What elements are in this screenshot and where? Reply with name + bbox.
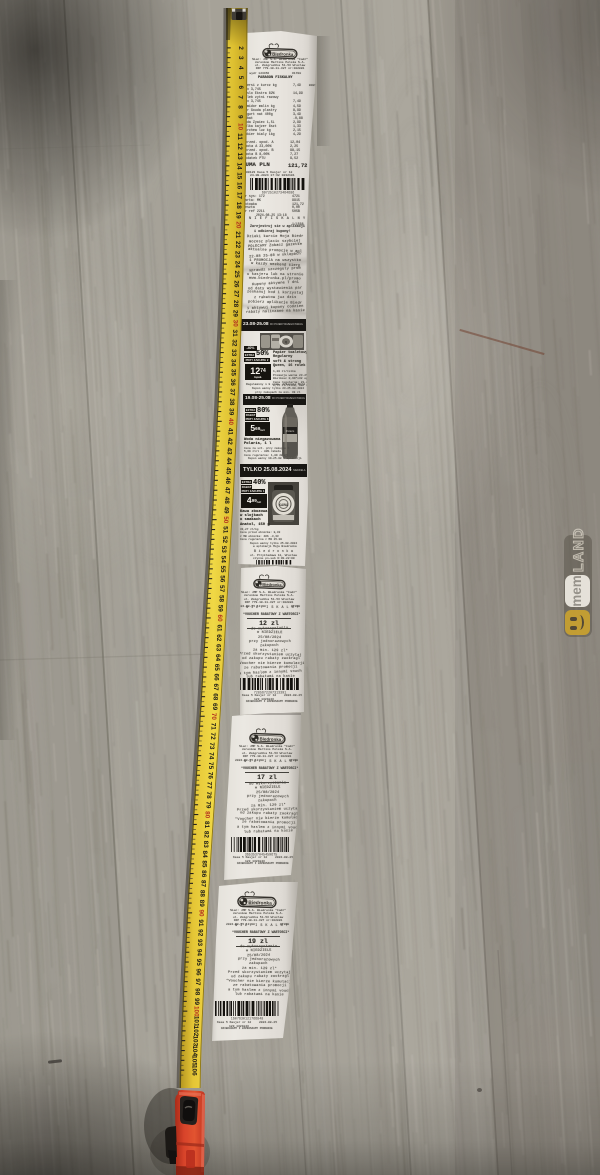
svg-text:63: 63 — [214, 644, 221, 652]
svg-text:12: 12 — [236, 143, 243, 151]
svg-text:71: 71 — [210, 723, 217, 731]
svg-text:75: 75 — [207, 762, 214, 770]
svg-text:48: 48 — [223, 497, 230, 505]
svg-text:94: 94 — [196, 949, 203, 957]
svg-text:19: 19 — [235, 212, 242, 220]
svg-text:64: 64 — [214, 654, 221, 662]
svg-text:50: 50 — [222, 516, 229, 524]
svg-text:47: 47 — [224, 487, 231, 495]
svg-text:67: 67 — [212, 683, 219, 691]
svg-text:43: 43 — [226, 447, 233, 455]
svg-text:11: 11 — [236, 133, 243, 140]
svg-text:26: 26 — [233, 280, 240, 288]
svg-text:62: 62 — [215, 634, 222, 642]
svg-text:61: 61 — [216, 624, 223, 632]
svg-text:57: 57 — [218, 585, 225, 593]
svg-text:13: 13 — [236, 153, 243, 161]
svg-text:53: 53 — [220, 546, 227, 554]
svg-text:83: 83 — [202, 841, 209, 849]
svg-text:51: 51 — [221, 526, 228, 534]
svg-text:79: 79 — [204, 801, 211, 809]
svg-text:39: 39 — [228, 408, 235, 416]
svg-text:73: 73 — [208, 742, 215, 750]
svg-text:22: 22 — [234, 241, 241, 249]
svg-text:28: 28 — [232, 300, 239, 308]
svg-text:55: 55 — [219, 565, 226, 573]
svg-text:40: 40 — [227, 418, 234, 426]
svg-text:98: 98 — [194, 988, 201, 996]
svg-text:37: 37 — [229, 389, 236, 397]
svg-text:84: 84 — [201, 851, 208, 859]
svg-text:30: 30 — [231, 320, 238, 328]
svg-text:23: 23 — [234, 251, 241, 259]
svg-text:54: 54 — [220, 556, 227, 564]
svg-text:82: 82 — [203, 831, 210, 839]
svg-text:80: 80 — [204, 811, 211, 819]
svg-text:69: 69 — [211, 703, 218, 711]
svg-text:27: 27 — [232, 290, 239, 298]
svg-text:17: 17 — [235, 192, 242, 200]
svg-text:10: 10 — [236, 123, 243, 131]
svg-text:32: 32 — [231, 339, 238, 347]
svg-text:70: 70 — [210, 713, 217, 721]
svg-text:97: 97 — [194, 978, 201, 986]
svg-text:68: 68 — [211, 693, 218, 701]
svg-text:65: 65 — [213, 664, 220, 672]
svg-text:14: 14 — [236, 162, 243, 170]
svg-text:46: 46 — [224, 477, 231, 485]
svg-text:34: 34 — [230, 359, 237, 367]
svg-text:74: 74 — [208, 752, 215, 760]
svg-text:66: 66 — [213, 674, 220, 682]
svg-text:6: 6 — [237, 86, 244, 90]
svg-text:81: 81 — [203, 821, 210, 829]
svg-text:77: 77 — [206, 782, 213, 790]
svg-text:45: 45 — [225, 467, 232, 475]
svg-text:4: 4 — [237, 66, 244, 70]
svg-text:58: 58 — [217, 595, 224, 603]
svg-text:92: 92 — [197, 929, 204, 937]
svg-text:33: 33 — [230, 349, 237, 357]
svg-text:3: 3 — [237, 56, 244, 60]
svg-text:72: 72 — [209, 733, 216, 741]
svg-text:16: 16 — [235, 182, 242, 190]
svg-text:15: 15 — [236, 172, 243, 180]
svg-text:5: 5 — [237, 76, 244, 80]
svg-text:41: 41 — [227, 428, 234, 436]
svg-text:7: 7 — [237, 95, 244, 99]
svg-text:59: 59 — [217, 605, 224, 613]
svg-text:106: 106 — [191, 1065, 198, 1076]
svg-text:90: 90 — [198, 909, 205, 917]
svg-text:87: 87 — [199, 880, 206, 888]
svg-text:88: 88 — [199, 890, 206, 898]
svg-text:99: 99 — [193, 998, 200, 1006]
svg-text:38: 38 — [228, 398, 235, 406]
svg-text:93: 93 — [196, 939, 203, 947]
svg-text:89: 89 — [198, 900, 205, 908]
svg-text:36: 36 — [229, 379, 236, 387]
svg-text:78: 78 — [205, 792, 212, 800]
svg-text:52: 52 — [221, 536, 228, 544]
svg-text:25: 25 — [233, 271, 240, 279]
svg-text:20: 20 — [235, 221, 242, 229]
svg-text:8: 8 — [237, 105, 244, 109]
svg-text:29: 29 — [232, 310, 239, 318]
svg-text:21: 21 — [234, 231, 241, 239]
svg-text:35: 35 — [229, 369, 236, 377]
svg-text:85: 85 — [201, 860, 208, 868]
svg-text:86: 86 — [200, 870, 207, 878]
svg-text:49: 49 — [223, 506, 230, 514]
svg-text:96: 96 — [195, 968, 202, 976]
svg-text:31: 31 — [231, 330, 238, 338]
svg-text:24: 24 — [233, 261, 240, 269]
svg-text:60: 60 — [216, 615, 223, 623]
svg-text:91: 91 — [197, 919, 204, 927]
svg-text:95: 95 — [195, 959, 202, 967]
svg-text:42: 42 — [226, 438, 233, 446]
svg-text:44: 44 — [225, 457, 232, 465]
svg-text:18: 18 — [235, 202, 242, 210]
svg-text:76: 76 — [206, 772, 213, 780]
svg-text:9: 9 — [236, 115, 243, 119]
svg-text:56: 56 — [219, 575, 226, 583]
svg-text:2: 2 — [237, 46, 244, 50]
